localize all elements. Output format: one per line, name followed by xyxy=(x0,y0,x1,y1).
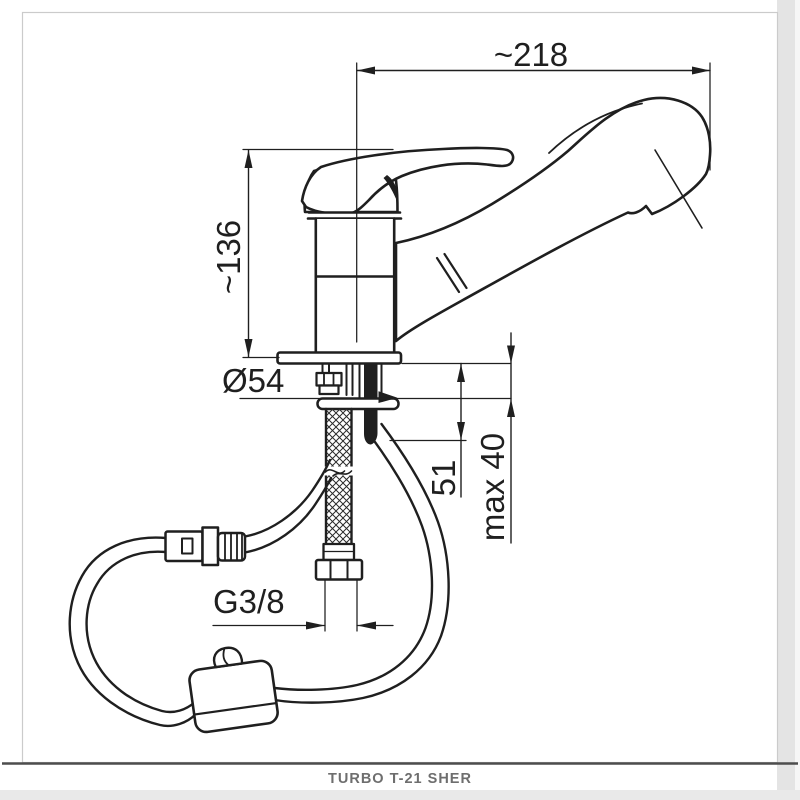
supply-hex-nut xyxy=(316,560,362,580)
dim-overall-height-label: ~136 xyxy=(210,220,247,294)
body-fill xyxy=(317,219,394,352)
product-caption: TURBO T-21 SHER xyxy=(328,771,472,787)
right-page-shadow xyxy=(777,0,795,790)
quick-connector xyxy=(166,528,246,566)
dim-overall-width-label: ~218 xyxy=(494,36,568,73)
connector-hex xyxy=(203,528,219,566)
connector-slot xyxy=(182,539,193,554)
dim-base-diameter-label: Ø54 xyxy=(222,362,284,399)
right-page-edge xyxy=(795,0,800,790)
braid-texture xyxy=(327,409,351,544)
mounting-nut xyxy=(317,373,342,386)
base-flange xyxy=(278,353,402,364)
dim-max-counter-label: max 40 xyxy=(474,433,511,541)
bottom-page-band xyxy=(0,790,800,800)
technical-drawing-canvas: TURBO T-21 SHER xyxy=(0,0,800,800)
mounting-nut-lower xyxy=(320,386,339,395)
dim-supply-thread-label: G3/8 xyxy=(213,583,285,620)
dim-shank-length-label: 51 xyxy=(425,460,462,497)
spray-head-body xyxy=(188,659,279,733)
